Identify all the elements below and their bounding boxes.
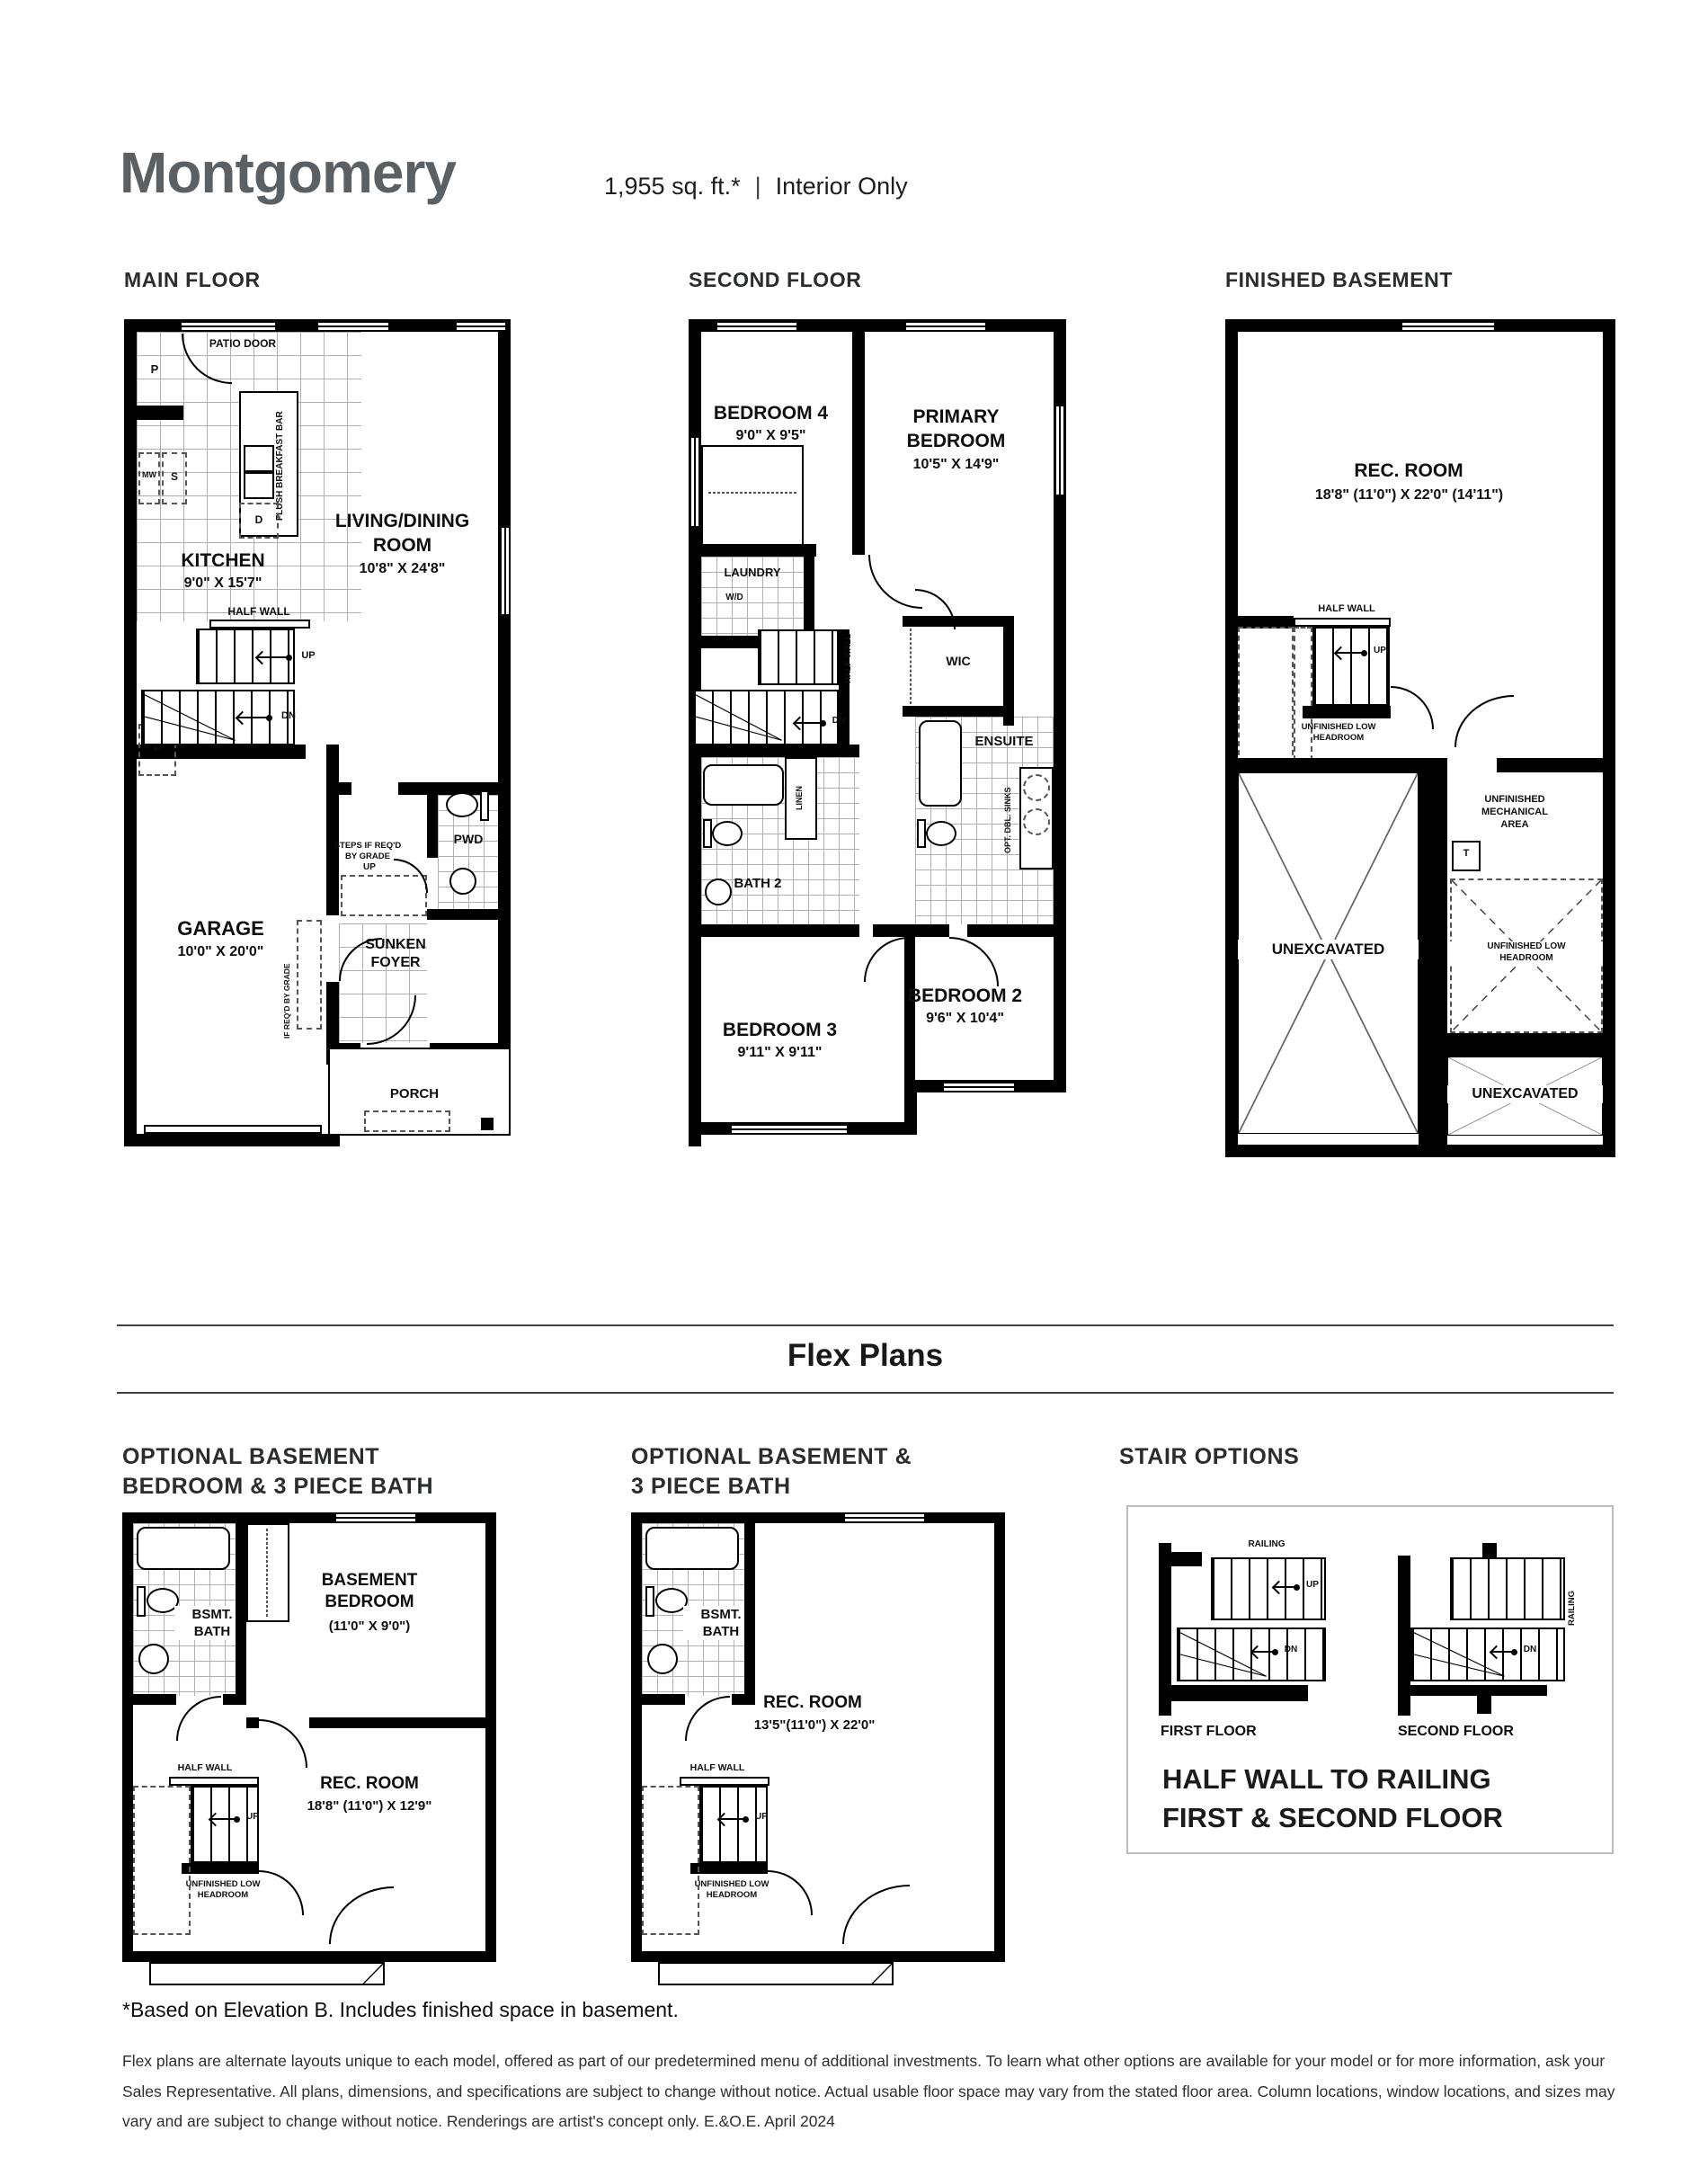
- rec-room-label: REC. ROOM: [732, 1692, 894, 1714]
- door-arc: [176, 1696, 221, 1741]
- window: [843, 1512, 926, 1523]
- flex-middle-plan: BSMT. BATH REC. ROOM 13'5"(11'0") X 22'0…: [631, 1512, 1005, 1998]
- wall: [744, 1523, 755, 1694]
- sink: [138, 1644, 169, 1674]
- wall: [246, 1717, 259, 1728]
- wall: [903, 706, 1014, 717]
- wall: [1225, 319, 1238, 1157]
- wall: [309, 1717, 496, 1728]
- toilet: [926, 821, 956, 846]
- stairs: [699, 1786, 768, 1863]
- toilet: [137, 1586, 146, 1617]
- window: [455, 321, 507, 332]
- footnote: *Based on Elevation B. Includes finished…: [122, 1998, 679, 2022]
- wall: [631, 1512, 1005, 1523]
- door-arc: [915, 589, 956, 629]
- wall: [1477, 1696, 1491, 1714]
- mechanical-label: UNFINISHED MECHANICAL AREA: [1447, 794, 1582, 831]
- low-headroom2-label: UNFINISHED LOW HEADROOM: [1450, 941, 1603, 964]
- wall: [1410, 1685, 1547, 1696]
- pwd-label: PWD: [437, 832, 500, 848]
- wall: [701, 745, 859, 757]
- wall: [994, 1512, 1005, 1962]
- stair-closet: [246, 1523, 289, 1622]
- window: [904, 321, 987, 332]
- flex-plans-title: Flex Plans: [117, 1338, 1614, 1374]
- wall: [852, 319, 865, 555]
- up-label: UP: [241, 1812, 264, 1824]
- window: [1401, 321, 1496, 332]
- half-wall: [680, 1777, 769, 1786]
- stairs: [191, 1786, 259, 1863]
- toilet: [446, 792, 478, 817]
- toilet: [480, 790, 489, 821]
- basement-bedroom-label: BASEMENT BEDROOM: [295, 1570, 444, 1614]
- railing-label: RAILING: [1213, 1539, 1321, 1551]
- microwave-label: MW: [135, 470, 164, 480]
- flex-middle-header: OPTIONAL BASEMENT & 3 PIECE BATH: [631, 1442, 912, 1502]
- first-floor-stair-diagram: RAILING UP DN: [1159, 1543, 1335, 1716]
- bedroom2-dims: 9'6" X 10'4": [895, 1010, 1035, 1028]
- up-label: UP: [1301, 1580, 1324, 1592]
- stair-options-header: STAIR OPTIONS: [1119, 1442, 1299, 1472]
- garage-label: GARAGE: [151, 916, 290, 941]
- half-wall: [209, 620, 310, 629]
- grade-note: IF REQ'D BY GRADE: [282, 959, 295, 1042]
- steps-up-label: UP: [356, 862, 383, 874]
- opt-dbl-sinks-label: OPT. DBL. SINKS: [1003, 780, 1016, 861]
- stairs: [1177, 1627, 1326, 1681]
- wall: [1497, 758, 1615, 772]
- wall: [326, 745, 339, 915]
- rec-room-dims: 18'8" (11'0") X 22'0" (14'11"): [1285, 486, 1533, 504]
- porch-steps: [364, 1110, 450, 1132]
- bedroom3-label: BEDROOM 3: [710, 1019, 850, 1043]
- wall: [1171, 1685, 1308, 1701]
- wall: [485, 1512, 496, 1962]
- door-arc: [1391, 686, 1434, 729]
- toilet: [712, 821, 743, 846]
- wall: [122, 1512, 496, 1523]
- wall: [631, 1512, 642, 1962]
- garage-door-box: [297, 920, 322, 1030]
- half-wall-label: HALF WALL: [669, 1762, 766, 1774]
- second-floor-label: SECOND FLOOR: [689, 266, 861, 293]
- dn-arrow: [237, 717, 270, 718]
- wall: [967, 924, 1054, 937]
- bathtub: [919, 720, 962, 807]
- door-arc: [949, 937, 999, 986]
- door-arc: [868, 555, 922, 609]
- door-arc: [842, 1885, 910, 1944]
- wall: [498, 319, 511, 1048]
- sink: [449, 868, 476, 895]
- door-arc: [394, 859, 428, 893]
- wall: [122, 1951, 496, 1962]
- wall: [1159, 1543, 1171, 1716]
- wall: [701, 924, 859, 937]
- dn-arrow: [795, 722, 823, 724]
- washer-dryer-label: W/D: [703, 593, 766, 604]
- up-label: UP: [295, 650, 322, 663]
- bedroom2-label: BEDROOM 2: [895, 985, 1035, 1009]
- bedroom4-label: BEDROOM 4: [701, 402, 841, 426]
- kitchen-dims: 9'0" X 15'7": [156, 575, 290, 593]
- linen-label: LINEN: [795, 765, 807, 832]
- second-floor-stair-diagram: RAILING DN: [1398, 1543, 1574, 1716]
- window: [500, 526, 511, 616]
- basement-label: FINISHED BASEMENT: [1225, 266, 1453, 293]
- wall: [1603, 319, 1615, 1157]
- half-wall-label: HALF WALL: [156, 1762, 254, 1774]
- dn-label: DN: [275, 710, 302, 723]
- wall: [427, 909, 511, 920]
- closet-rod: [910, 629, 912, 704]
- sink: [647, 1644, 678, 1674]
- window: [689, 436, 700, 528]
- page-title: Montgomery: [120, 139, 456, 206]
- half-wall-label: HALF WALL: [843, 632, 856, 686]
- half-wall-label: HALF WALL: [209, 605, 308, 619]
- unexcavated-label: UNEXCAVATED: [1238, 940, 1419, 959]
- porch-column: [481, 1118, 494, 1130]
- wall: [690, 1863, 768, 1874]
- rec-room-dims: 18'8" (11'0") X 12'9": [255, 1798, 484, 1815]
- floorplan-sheet: { "header": { "title": "Montgomery", "sq…: [0, 0, 1708, 2158]
- low-headroom-zone: [642, 1786, 699, 1935]
- bath2-label: BATH 2: [708, 875, 807, 892]
- bathtub: [137, 1527, 230, 1570]
- unexcavated2-label: UNEXCAVATED: [1447, 1085, 1603, 1103]
- dishwasher-label: D: [239, 513, 279, 527]
- up-label: UP: [1367, 646, 1392, 657]
- low-headroom-label: UNFINISHED LOW HEADROOM: [1281, 722, 1396, 744]
- tank-label: T: [1452, 848, 1481, 861]
- up-arrow: [719, 1818, 746, 1820]
- subtitle-divider: |: [755, 173, 761, 201]
- up-arrow: [1336, 652, 1365, 654]
- half-wall-label: HALF WALL: [1297, 603, 1396, 616]
- toilet: [917, 819, 926, 848]
- porch-label: PORCH: [365, 1085, 464, 1102]
- stairs: [1312, 627, 1390, 706]
- wall: [904, 1080, 917, 1135]
- wall: [642, 1694, 685, 1705]
- kitchen-label: KITCHEN: [156, 549, 290, 574]
- garage-door: [144, 1125, 322, 1134]
- wall: [137, 406, 183, 420]
- wall: [182, 1863, 259, 1874]
- wall: [1225, 758, 1447, 772]
- stair-option-caption: HALF WALL TO RAILING FIRST & SECOND FLOO…: [1162, 1761, 1594, 1838]
- sink: [1023, 808, 1050, 835]
- window: [334, 1512, 417, 1523]
- door-arc: [864, 937, 909, 982]
- second-floor-caption: SECOND FLOOR: [1398, 1723, 1596, 1741]
- wall: [124, 1134, 340, 1146]
- wall: [701, 544, 816, 557]
- wall: [1171, 1552, 1202, 1566]
- up-label: UP: [750, 1812, 773, 1824]
- bathtub: [703, 764, 784, 806]
- sink: [1023, 774, 1050, 801]
- window: [716, 321, 798, 332]
- wall: [1303, 706, 1391, 718]
- window: [730, 1124, 849, 1135]
- wall: [1447, 1033, 1615, 1057]
- patio-door-window: [180, 321, 277, 332]
- second-floor-plan: BEDROOM 4 9'0" X 9'5" PRIMARY BEDROOM 10…: [689, 319, 1066, 1157]
- sink-label: S: [162, 470, 187, 484]
- dn-label: DN: [1279, 1645, 1303, 1656]
- living-dining-label: LIVING/DINING ROOM: [319, 510, 485, 558]
- door-arc: [1454, 695, 1514, 747]
- window: [316, 321, 390, 332]
- first-floor-caption: FIRST FLOOR: [1161, 1723, 1340, 1741]
- disclaimer: Flex plans are alternate layouts unique …: [122, 2047, 1616, 2137]
- toilet: [645, 1586, 654, 1617]
- door-arc: [768, 1870, 813, 1915]
- wall: [873, 924, 949, 937]
- page-subtitle: 1,955 sq. ft.* | Interior Only: [604, 173, 908, 201]
- dn-label: DN: [1518, 1645, 1542, 1656]
- bathtub: [645, 1527, 739, 1570]
- dn-arrow: [1491, 1651, 1515, 1653]
- wall: [339, 782, 351, 795]
- flex-left-plan: BSMT. BATH BASEMENT BEDROOM (11'0" X 9'0…: [122, 1512, 496, 1998]
- dn-label: DN: [827, 716, 850, 727]
- basement-window-well: [149, 1962, 385, 1985]
- wall: [1419, 758, 1447, 1157]
- wall: [1398, 1556, 1410, 1716]
- rec-room-dims: 13'5"(11'0") X 22'0": [700, 1717, 929, 1734]
- laundry-label: LAUNDRY: [701, 566, 804, 580]
- low-headroom-zone: [133, 1786, 191, 1935]
- wall: [133, 1694, 176, 1705]
- stairs: [1410, 1627, 1565, 1681]
- window: [1054, 405, 1065, 496]
- flex-left-header: OPTIONAL BASEMENT BEDROOM & 3 PIECE BATH: [122, 1442, 433, 1502]
- stairs: [758, 629, 839, 685]
- dn-arrow: [1252, 1651, 1276, 1653]
- bedroom3-dims: 9'11" X 9'11": [710, 1044, 850, 1062]
- basement-plan: REC. ROOM 18'8" (11'0") X 22'0" (14'11")…: [1225, 319, 1615, 1157]
- wic-label: WIC: [913, 654, 1003, 670]
- interior-text: Interior Only: [776, 173, 908, 201]
- island-sink: [244, 472, 274, 499]
- up-arrow: [210, 1818, 237, 1820]
- up-arrow: [257, 656, 289, 658]
- half-wall: [169, 1777, 259, 1786]
- basement-bedroom-dims: (11'0" X 9'0"): [295, 1618, 444, 1636]
- up-arrow: [1274, 1586, 1297, 1588]
- closet-rod: [708, 492, 796, 494]
- stairs: [692, 690, 839, 745]
- door-arc: [259, 1719, 307, 1768]
- wall: [124, 319, 137, 1146]
- rec-room-label: REC. ROOM: [289, 1773, 450, 1795]
- island-sink: [244, 445, 274, 472]
- toilet: [703, 819, 712, 848]
- sqft-text: 1,955 sq. ft.*: [604, 173, 741, 201]
- bed4-closet: [701, 445, 804, 546]
- ensuite-label: ENSUITE: [955, 733, 1054, 750]
- living-dining-dims: 10'8" X 24'8": [319, 560, 485, 578]
- bedroom4-dims: 9'0" X 9'5": [701, 427, 841, 445]
- stair-options-box: RAILING UP DN FIRST FLOOR RAILING DN: [1126, 1505, 1614, 1854]
- wall: [122, 1512, 133, 1962]
- garage-dims: 10'0" X 20'0": [151, 943, 290, 961]
- wall: [223, 1694, 246, 1705]
- door-arc: [259, 1870, 304, 1915]
- main-floor-plan: PATIO DOOR P FLUSH BREAKFAST BAR D MW S …: [124, 319, 511, 1157]
- wall: [236, 1523, 246, 1694]
- divider-line: [117, 1392, 1614, 1394]
- stairs: [1450, 1557, 1565, 1620]
- window: [942, 1082, 1016, 1092]
- wall: [1482, 1543, 1497, 1557]
- basement-window-well: [658, 1962, 894, 1985]
- half-wall: [1294, 618, 1391, 627]
- divider-line: [117, 1324, 1614, 1326]
- railing-label: RAILING: [1567, 1570, 1579, 1645]
- door-arc: [329, 1886, 394, 1944]
- pantry-label: P: [142, 362, 167, 377]
- main-floor-label: MAIN FLOOR: [124, 266, 261, 293]
- wall: [427, 795, 438, 858]
- primary-bedroom-dims: 10'5" X 14'9": [886, 456, 1026, 474]
- wall: [631, 1951, 1005, 1962]
- rec-room-label: REC. ROOM: [1319, 459, 1499, 484]
- primary-bedroom-label: PRIMARY BEDROOM: [886, 406, 1026, 454]
- closet-rod: [266, 1529, 268, 1617]
